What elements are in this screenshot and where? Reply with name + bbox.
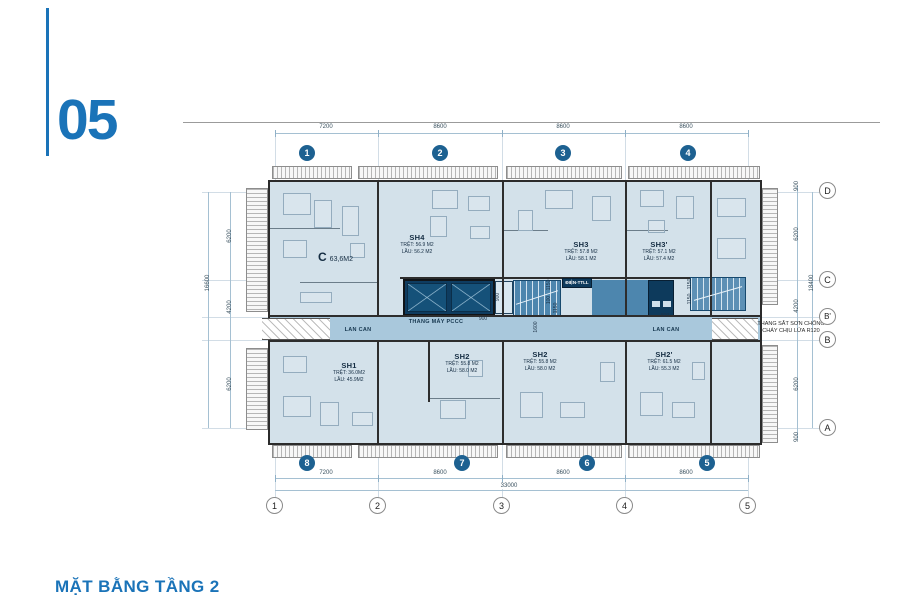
wall [270, 340, 760, 342]
dim-right-2: 6200 [794, 214, 800, 254]
balcony-strip [628, 166, 760, 179]
unit-name: C [318, 250, 327, 264]
unit-name: SH4 [382, 233, 452, 242]
lan-can-label-right: LAN CAN [646, 327, 686, 333]
furniture-outline [283, 193, 311, 215]
axis-bubble-2-bottom: 2 [369, 497, 386, 514]
core-dim: 100 [546, 291, 552, 309]
furniture-outline [648, 220, 665, 233]
unit-area: 63,6M2 [330, 256, 353, 263]
wall [502, 182, 504, 315]
furniture-outline [592, 196, 611, 221]
balcony-strip [272, 166, 352, 179]
wall [377, 182, 379, 315]
furniture-outline [314, 200, 332, 228]
unit-name: SH2 [505, 350, 575, 359]
dim-tick [378, 475, 379, 482]
axis-bubble-b-prime: B' [819, 308, 836, 325]
unit-area-lau: LẦU: 58.0 M2 [505, 366, 575, 372]
partition [300, 282, 377, 283]
unit-name: SH3 [546, 240, 616, 249]
unit-label-sh1: SH1 TRỆT: 36.0M2 LẦU: 45.9M2 [314, 361, 384, 383]
dim-bottom-2: 8600 [420, 470, 460, 476]
unit-area-lau: LẦU: 45.9M2 [314, 377, 384, 383]
axis-bubble-a: A [819, 419, 836, 436]
balcony-strip-right [762, 188, 778, 305]
unit-label-sh2a: SH2 TRỆT: 55.8 M2 LẦU: 58.0 M2 [427, 352, 497, 374]
dim-tick [275, 475, 276, 482]
dim-right-3: 4200 [794, 286, 800, 326]
furniture-outline [717, 238, 746, 259]
unit-label-c: C 63,6M2 [318, 250, 353, 264]
unit-area-lau: LẦU: 55.3 M2 [629, 366, 699, 372]
unit-area-lau: LẦU: 58.0 M2 [427, 368, 497, 374]
dim-tick [275, 130, 276, 137]
furniture-outline [320, 402, 339, 426]
furniture-outline [672, 402, 695, 418]
axis-bubble-b: B [819, 331, 836, 348]
core-dim: 900 [474, 316, 492, 322]
plan-title: MẶT BẰNG TẦNG 2 [55, 577, 220, 597]
wall [625, 342, 627, 443]
unit-label-sh2b: SH2 TRỆT: 55.8 M2 LẦU: 58.0 M2 [505, 350, 575, 372]
core-dim: 900 [495, 288, 501, 306]
floor-plan-sheet: 05 MẶT BẰNG TẦNG 2 7200 8600 8600 8600 1… [0, 0, 900, 605]
core-dim: 1600 [533, 318, 539, 336]
furniture-outline [717, 198, 746, 217]
dim-line-bottom [275, 478, 748, 479]
utility-shaft-label: ĐIỆN-TTLL [562, 280, 592, 285]
furniture-outline [470, 226, 490, 239]
furniture-outline [560, 402, 585, 418]
axis-bubble-5-bottom: 5 [699, 455, 715, 471]
axis-bubble-d: D [819, 182, 836, 199]
dim-top-4: 8600 [666, 124, 706, 130]
dim-right-total: 18400 [809, 263, 815, 303]
dim-top-1: 7200 [306, 124, 346, 130]
lan-can-label-left: LAN CAN [338, 327, 378, 333]
corridor-open-end-left [262, 318, 330, 340]
dim-right-4: 6200 [794, 364, 800, 404]
fire-elevator-label: THANG MÁY PCCC [394, 319, 478, 325]
unit-label-sh3: SH3 TRỆT: 57.8 M2 LẦU: 58.1 M2 [546, 240, 616, 262]
dim-line-left-total [208, 192, 209, 428]
balcony-strip [628, 445, 760, 458]
dim-tick [625, 130, 626, 137]
unit-area-lau: LẦU: 56.2 M2 [382, 249, 452, 255]
dim-tick [748, 130, 749, 137]
dim-left-total: 16600 [205, 263, 211, 303]
axis-bubble-c: C [819, 271, 836, 288]
wall [270, 315, 760, 317]
furniture-outline [468, 196, 490, 211]
wall [710, 342, 712, 443]
furniture-outline [283, 356, 307, 373]
electrical-room [648, 280, 674, 316]
furniture-outline [440, 400, 466, 419]
axis-bubble-8-bottom: 8 [299, 455, 315, 471]
unit-name: SH2 [427, 352, 497, 361]
dim-left-2: 4200 [227, 287, 233, 327]
dim-right-1: 900 [794, 166, 800, 206]
balcony-strip [506, 166, 622, 179]
sheet-number: 05 [57, 92, 116, 149]
unit-label-sh4: SH4 TRỆT: 56.9 M2 LẦU: 56.2 M2 [382, 233, 452, 255]
axis-bubble-1-top: 1 [299, 145, 315, 161]
unit-label-sh2p: SH2' TRỆT: 61.5 M2 LẦU: 55.3 M2 [629, 350, 699, 372]
axis-bubble-1-bottom: 1 [266, 497, 283, 514]
axis-bubble-4-top: 4 [680, 145, 696, 161]
core-vestibule [592, 280, 648, 316]
core-dim: 800 [656, 313, 674, 319]
dim-tick [625, 475, 626, 482]
fixture [652, 301, 660, 307]
axis-bubble-5-bottom-axis: 5 [739, 497, 756, 514]
partition [430, 398, 500, 399]
core-dim: 1150 [687, 290, 693, 308]
brand-accent-line [46, 8, 49, 156]
dim-left-3: 6200 [227, 364, 233, 404]
elevator-shaft [407, 283, 447, 312]
axis-bubble-2-top: 2 [432, 145, 448, 161]
furniture-outline [520, 392, 543, 418]
dim-tick [502, 130, 503, 137]
furniture-outline [640, 190, 664, 207]
balcony-strip [358, 166, 498, 179]
balcony-strip-left [246, 188, 268, 312]
unit-area-lau: LẦU: 57.4 M2 [624, 256, 694, 262]
wall [502, 342, 504, 443]
furniture-outline [600, 362, 615, 382]
balcony-strip [506, 445, 622, 458]
dim-tick [748, 475, 749, 482]
wall [377, 342, 379, 443]
furniture-outline [640, 392, 663, 416]
balcony-strip-right [762, 345, 778, 443]
balcony-strip-left [246, 348, 268, 430]
unit-name: SH1 [314, 361, 384, 370]
axis-bubble-6-bottom: 6 [579, 455, 595, 471]
partition [270, 228, 340, 229]
dim-line-bottom-total [275, 490, 748, 491]
furniture-outline [352, 412, 373, 426]
elevator-shaft [451, 283, 491, 312]
furniture-outline [518, 210, 533, 231]
unit-area-lau: LẦU: 58.1 M2 [546, 256, 616, 262]
dim-bottom-4: 8600 [666, 470, 706, 476]
dim-left-1: 6200 [227, 216, 233, 256]
dim-bottom-1: 7200 [306, 470, 346, 476]
furniture-outline [545, 190, 573, 209]
furniture-outline [283, 240, 307, 258]
dim-bottom-3: 8600 [543, 470, 583, 476]
dim-top-3: 8600 [543, 124, 583, 130]
axis-bubble-4-bottom: 4 [616, 497, 633, 514]
furniture-outline [342, 206, 359, 236]
dim-right-5: 900 [794, 417, 800, 457]
dim-top-2: 8600 [420, 124, 460, 130]
header-rule [183, 122, 880, 123]
dim-bottom-total: 33000 [489, 483, 529, 489]
dim-tick [502, 475, 503, 482]
dim-tick [378, 130, 379, 137]
axis-bubble-3-top: 3 [555, 145, 571, 161]
unit-name: SH3' [624, 240, 694, 249]
dim-line-top [275, 133, 748, 134]
unit-name: SH2' [629, 350, 699, 359]
dim-line-right-total [812, 192, 813, 428]
furniture-outline [283, 396, 311, 417]
furniture-outline [432, 190, 458, 209]
fixture [663, 301, 671, 307]
core-dim: 1150 [553, 299, 559, 317]
furniture-outline [676, 196, 694, 219]
axis-bubble-7-bottom: 7 [454, 455, 470, 471]
unit-label-sh3p: SH3' TRỆT: 57.1 M2 LẦU: 57.4 M2 [624, 240, 694, 262]
axis-bubble-3-bottom: 3 [493, 497, 510, 514]
balcony-strip [358, 445, 498, 458]
furniture-outline [300, 292, 332, 303]
